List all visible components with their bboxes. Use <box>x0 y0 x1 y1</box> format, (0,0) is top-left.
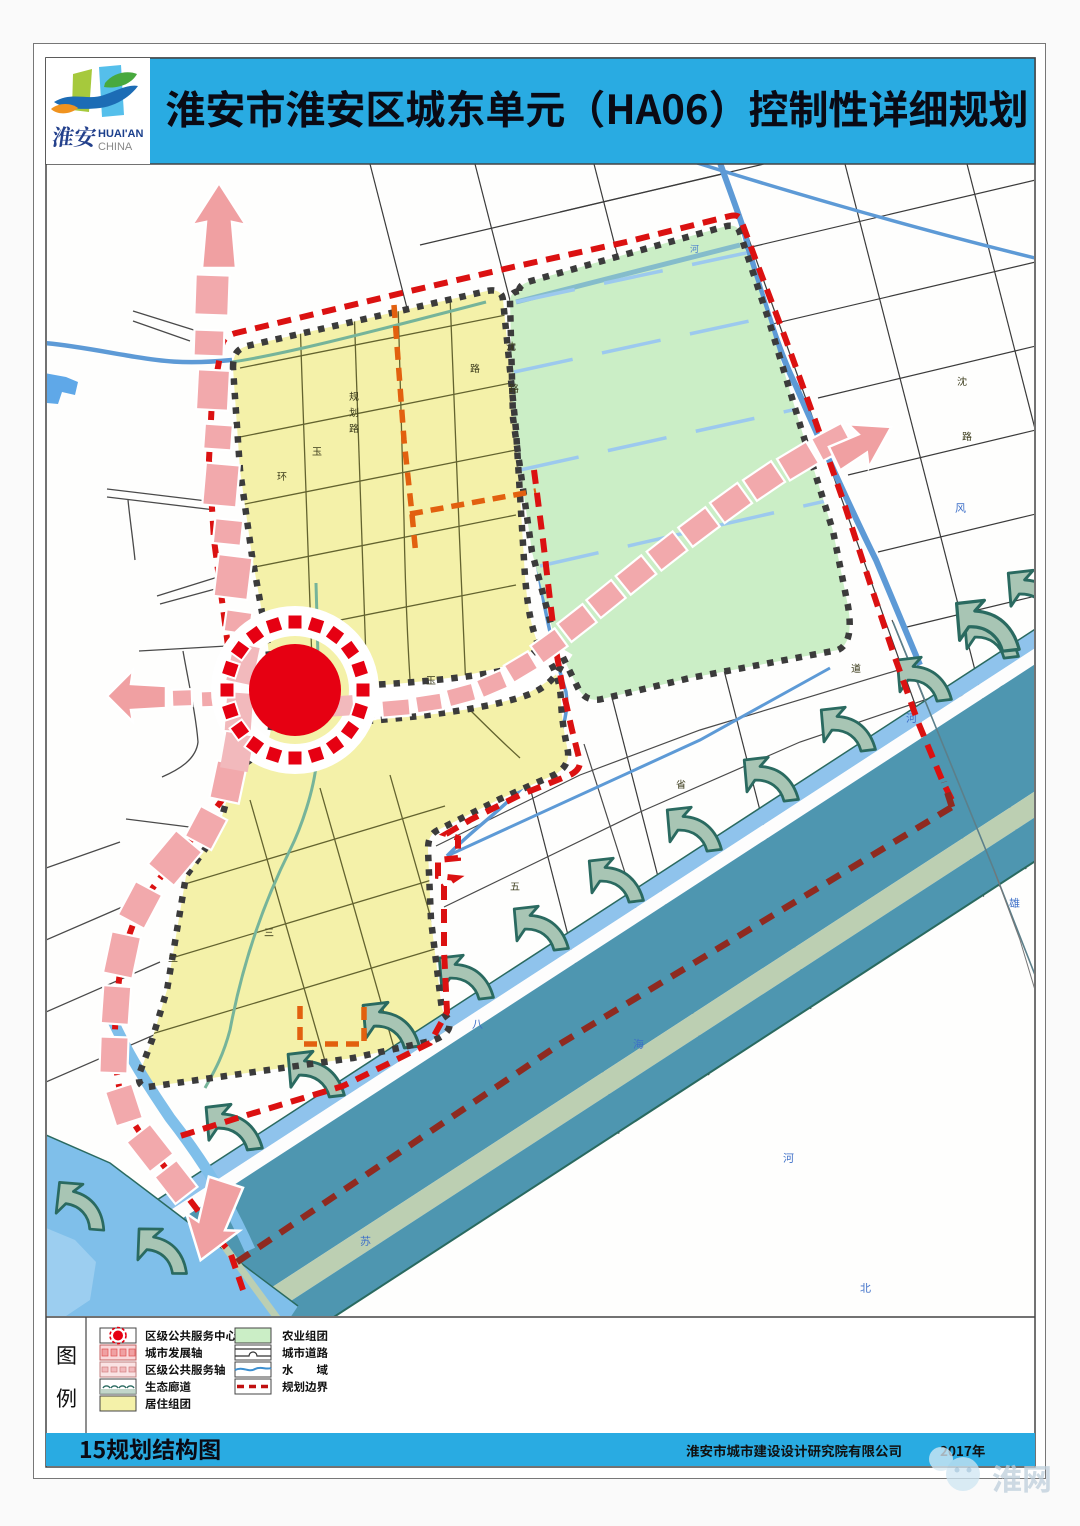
svg-text:CHINA: CHINA <box>98 141 133 153</box>
svg-text:HUAI'AN: HUAI'AN <box>98 128 143 140</box>
